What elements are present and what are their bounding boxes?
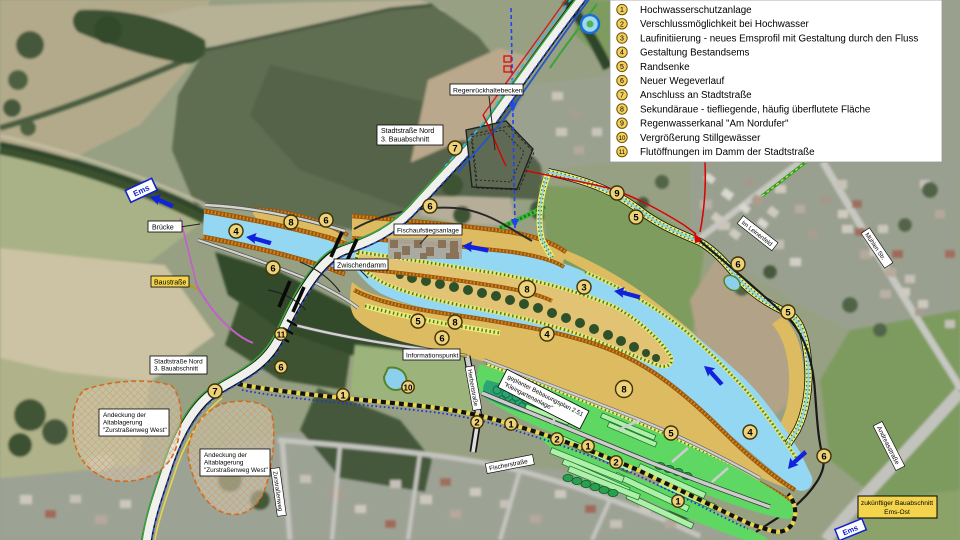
svg-text:7: 7 [452,144,457,155]
svg-text:2: 2 [474,418,479,429]
svg-text:8: 8 [288,218,293,229]
svg-text:8: 8 [524,285,529,296]
svg-text:Regenrückhaltebecken: Regenrückhaltebecken [453,88,523,95]
svg-text:6: 6 [735,260,740,271]
svg-text:Fischaufstiegsanlage: Fischaufstiegsanlage [397,228,459,235]
svg-text:Flutöffnungen im Damm der Stad: Flutöffnungen im Damm der Stadtstraße [640,147,815,158]
svg-text:3. Bauabschnitt: 3. Bauabschnitt [154,366,198,373]
svg-text:9: 9 [620,121,624,128]
svg-text:Randsenke: Randsenke [640,62,690,73]
svg-text:Sekundäraue - tiefliegende, hä: Sekundäraue - tiefliegende, häufig überf… [640,104,871,115]
svg-text:7: 7 [620,92,624,99]
svg-text:Informationspunkt: Informationspunkt [406,353,459,360]
svg-text:2: 2 [613,458,618,469]
svg-text:Altablagerung: Altablagerung [204,460,244,467]
svg-text:Zwischendamm: Zwischendamm [337,263,386,270]
svg-text:Ems-Ost: Ems-Ost [884,509,910,516]
svg-text:Verschlussmöglichkeit bei Hoch: Verschlussmöglichkeit bei Hochwasser [640,19,810,30]
svg-text:"Zurstraßenweg West": "Zurstraßenweg West" [103,427,167,434]
svg-text:Regenwasserkanal "Am Nordufer": Regenwasserkanal "Am Nordufer" [640,119,789,130]
svg-text:Stadtstraße Nord: Stadtstraße Nord [381,128,434,135]
svg-text:Anschluss an Stadtstraße: Anschluss an Stadtstraße [640,90,752,101]
svg-text:5: 5 [633,213,639,224]
svg-text:Brücke: Brücke [152,225,174,232]
svg-text:5: 5 [415,317,421,328]
svg-text:6: 6 [323,216,328,227]
svg-text:5: 5 [785,308,791,319]
svg-text:4: 4 [620,50,624,57]
svg-text:"Zurstraßenweg West": "Zurstraßenweg West" [204,467,268,474]
svg-text:11: 11 [619,150,626,156]
svg-text:7: 7 [212,387,217,398]
svg-text:zukünftiger Bauabschnitt: zukünftiger Bauabschnitt [861,500,933,507]
svg-text:10: 10 [619,136,626,142]
svg-text:Vergrößerung Stillgewässer: Vergrößerung Stillgewässer [640,133,761,144]
svg-text:Stadtstraße Nord: Stadtstraße Nord [154,359,203,366]
svg-text:3: 3 [581,283,586,294]
svg-text:11: 11 [277,331,286,340]
svg-text:4: 4 [747,428,753,439]
svg-text:Hochwasserschutzanlage: Hochwasserschutzanlage [640,5,752,16]
svg-text:Laufinitiierung - neues Emspro: Laufinitiierung - neues Emsprofil mit Ge… [640,33,918,44]
svg-text:1: 1 [340,391,346,402]
svg-text:4: 4 [233,227,239,238]
svg-text:1: 1 [508,420,514,431]
svg-text:5: 5 [620,64,624,71]
svg-text:Andeckung der: Andeckung der [204,452,248,459]
svg-text:6: 6 [821,452,826,463]
svg-text:6: 6 [620,78,624,85]
svg-text:8: 8 [452,318,457,329]
svg-text:Neuer Wegeverlauf: Neuer Wegeverlauf [640,76,725,87]
svg-text:1: 1 [620,7,624,14]
svg-text:Altablagerung: Altablagerung [103,420,143,427]
svg-text:9: 9 [614,189,619,200]
svg-text:3. Bauabschnitt: 3. Bauabschnitt [381,137,429,144]
svg-text:10: 10 [404,384,413,393]
svg-text:1: 1 [585,442,591,453]
svg-text:8: 8 [621,385,626,396]
svg-text:6: 6 [278,363,283,374]
svg-text:4: 4 [544,330,550,341]
svg-text:Andeckung der: Andeckung der [103,412,147,419]
svg-text:1: 1 [675,497,681,508]
svg-text:6: 6 [427,202,432,213]
svg-text:Baustraße: Baustraße [154,280,186,287]
svg-text:3: 3 [620,36,624,43]
svg-text:Gestaltung Bestandsems: Gestaltung Bestandsems [640,48,750,59]
svg-text:5: 5 [668,429,674,440]
svg-text:2: 2 [554,435,559,446]
svg-text:2: 2 [620,21,624,28]
svg-text:6: 6 [439,334,444,345]
svg-text:6: 6 [270,264,275,275]
svg-text:8: 8 [620,107,624,114]
